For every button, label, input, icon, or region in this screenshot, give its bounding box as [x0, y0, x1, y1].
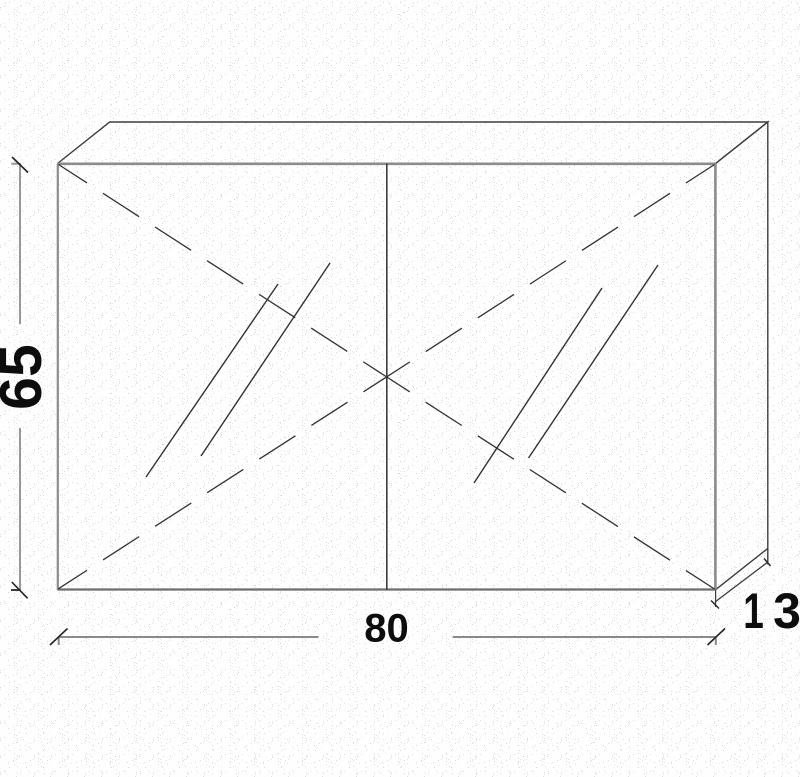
svg-text:1: 1 — [743, 584, 764, 640]
svg-text:80: 80 — [364, 607, 409, 651]
svg-text:3: 3 — [773, 583, 800, 639]
svg-text:65: 65 — [0, 344, 54, 410]
